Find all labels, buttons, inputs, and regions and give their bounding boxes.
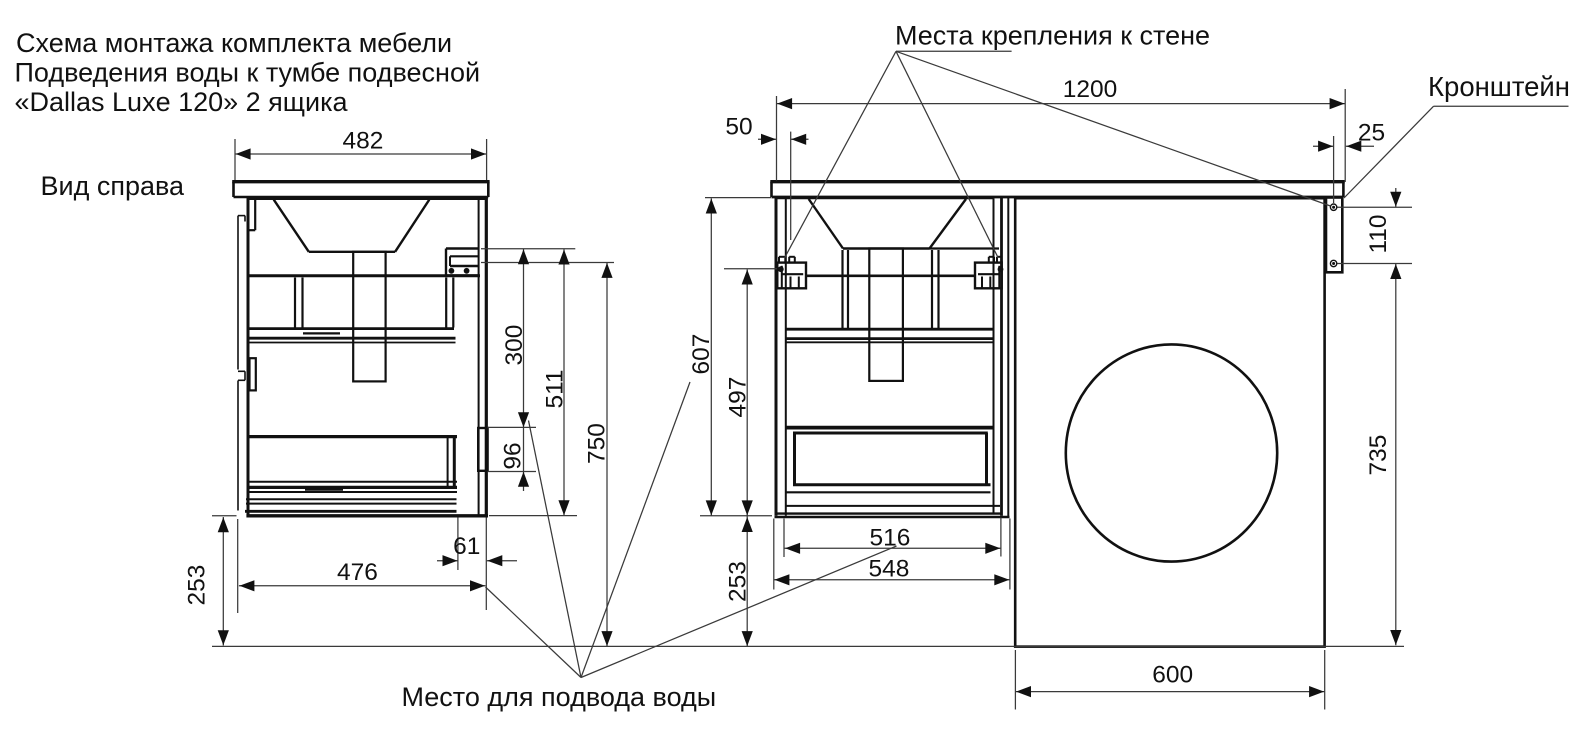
svg-text:735: 735 — [1365, 435, 1392, 476]
svg-text:548: 548 — [869, 556, 910, 583]
svg-text:511: 511 — [542, 369, 569, 408]
svg-text:300: 300 — [501, 325, 528, 366]
svg-text:Кронштейн: Кронштейн — [1428, 71, 1570, 102]
svg-text:516: 516 — [870, 524, 911, 551]
svg-text:Места крепления к стене: Места крепления к стене — [895, 20, 1210, 50]
svg-text:Подведения воды к тумбе подвес: Подведения воды к тумбе подвесной — [15, 58, 481, 88]
svg-text:750: 750 — [584, 423, 611, 464]
svg-text:«Dallas Luxe 120» 2 ящика: «Dallas Luxe 120» 2 ящика — [15, 87, 349, 117]
svg-text:607: 607 — [688, 334, 715, 375]
svg-text:50: 50 — [725, 114, 752, 141]
svg-text:497: 497 — [725, 377, 752, 418]
svg-text:Место для подвода воды: Место для подвода воды — [402, 682, 717, 712]
svg-text:61: 61 — [453, 533, 480, 560]
svg-text:110: 110 — [1365, 214, 1392, 253]
svg-text:1200: 1200 — [1063, 76, 1118, 103]
svg-text:476: 476 — [337, 559, 378, 586]
svg-text:253: 253 — [184, 565, 211, 606]
svg-text:Вид справа: Вид справа — [41, 171, 186, 201]
svg-text:253: 253 — [725, 561, 752, 602]
svg-text:482: 482 — [343, 128, 384, 155]
svg-text:600: 600 — [1152, 662, 1193, 689]
svg-text:25: 25 — [1358, 120, 1385, 147]
svg-text:96: 96 — [500, 442, 527, 469]
svg-text:Схема монтажа комплекта мебели: Схема монтажа комплекта мебели — [16, 28, 452, 58]
